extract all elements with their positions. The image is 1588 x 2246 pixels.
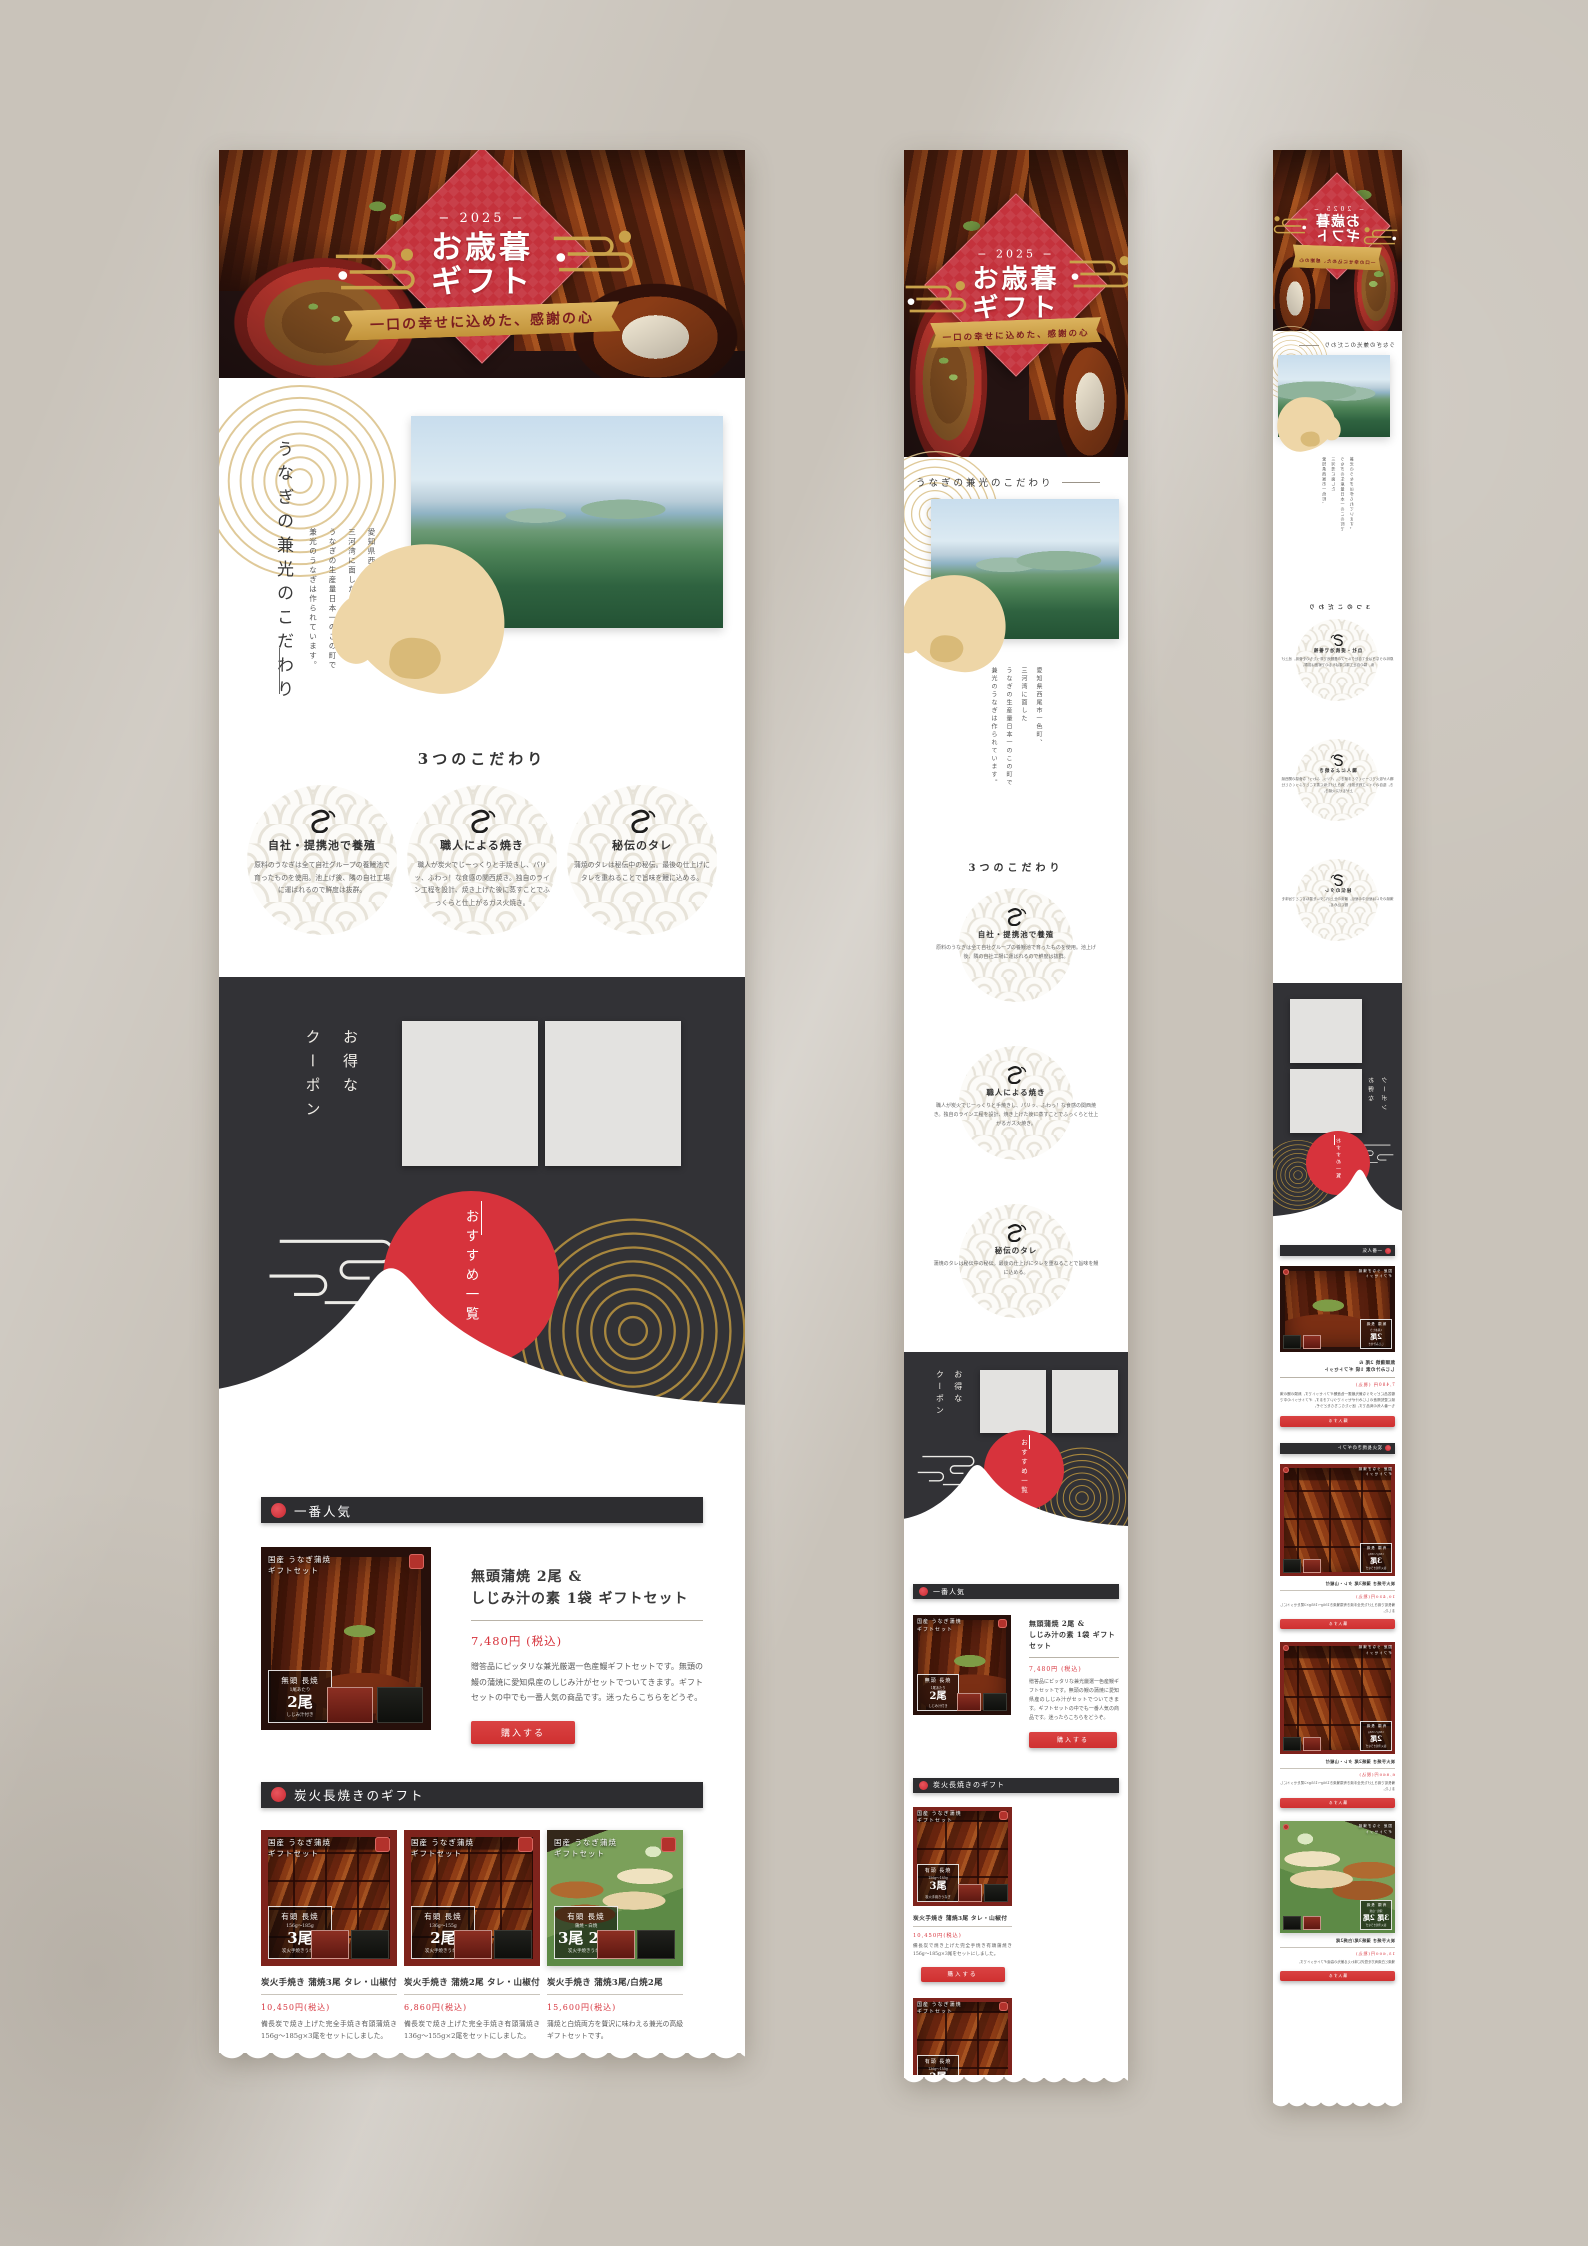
charcoal-gift-banner: 炭火長焼きのギフト xyxy=(913,1778,1119,1793)
buy-button[interactable]: 購入する xyxy=(1029,1732,1117,1748)
feature-desc: 蒲焼のタレは秘伝中の秘伝。最後の仕上げにタレを重ねることで旨味を鰻に込める。 xyxy=(573,859,711,884)
concept-title: うなぎの兼光のこだわり xyxy=(1280,341,1395,349)
banner-label: 炭火長焼きのギフト xyxy=(933,1780,1005,1790)
hero-title-line1: お歳暮 xyxy=(431,231,533,265)
red-seal-stamp-icon xyxy=(1283,1269,1289,1275)
product-photo: 国産 うなぎ蒲焼ギフトセット 無頭 長焼 1尾あたり 2尾 しじみ汁付き xyxy=(261,1547,431,1730)
banner-label: 一番人気 xyxy=(933,1587,965,1597)
concept-paragraph-line: 愛知県西尾市一色町、 xyxy=(1319,457,1328,573)
gold-cloud-icon xyxy=(1273,215,1314,237)
eel-icon xyxy=(1329,753,1346,766)
product-title: 無頭蒲焼 2尾 &しじみ汁の素 1袋 ギフトセット xyxy=(1029,1619,1119,1658)
photo-thumb xyxy=(377,1687,423,1723)
product-photo: 国産 うなぎ蒲焼ギフトセット 有頭 長焼 蒲焼・白焼 3尾 2尾 炭火手焼きうな… xyxy=(1280,1821,1395,1933)
photo-caption-line: ギフトセット xyxy=(268,1848,331,1859)
feature-desc: 職人が炭火でじーっくりと手焼きし、パリッ、ふわっ！な食感の関西焼き。独自のライン… xyxy=(1281,777,1395,795)
photo-caption: 国産 うなぎ蒲焼ギフトセット xyxy=(1358,1645,1392,1656)
features-heading: 3つのこだわり xyxy=(219,748,745,769)
gold-cloud-icon xyxy=(904,279,974,319)
product-card: 国産 うなぎ蒲焼ギフトセット 有頭 長焼 蒲焼・白焼 3尾 2尾 炭火手焼きうな… xyxy=(547,1830,683,2053)
eel-icon xyxy=(1003,1222,1029,1242)
product-title-line: しじみ汁の素 1袋 ギフトセット xyxy=(1029,1630,1119,1652)
badge-count: 2尾 xyxy=(1362,1735,1390,1743)
concept-title: うなぎの兼光のこだわり xyxy=(916,475,1116,489)
hero-ribbon-text: 一口の幸せに込めた、感謝の心 xyxy=(370,310,594,334)
badge-head: 有頭 長焼 xyxy=(919,1867,957,1874)
banner-dot-icon xyxy=(271,1503,286,1518)
feature-item: 秘伝のタレ 蒲焼のタレは秘伝中の秘伝。最後の仕上げにタレを重ねることで旨味を鰻に… xyxy=(916,1200,1116,1346)
badge-sub: 1尾あたり xyxy=(919,1685,957,1690)
feature-title: 自社・提携池で養殖 xyxy=(916,929,1116,940)
concept-title-rule xyxy=(279,648,280,694)
banner-label: 一番人気 xyxy=(294,1501,352,1520)
features-section: 3つのこだわり 自社・提携池で養殖 原料のうなぎは全て自社グループの養鰻池で育っ… xyxy=(904,849,1128,1352)
hero-year: − 2025 − xyxy=(431,211,533,226)
coupon-placeholder-1[interactable] xyxy=(980,1370,1046,1433)
product-desc: 備長炭で焼き上げた完全手焼き有頭蒲焼き136g〜155g×2尾をセットにしました… xyxy=(404,2019,540,2043)
product-title-line: 無頭蒲焼 2尾 & xyxy=(471,1567,703,1589)
banner-dot-icon xyxy=(919,1781,928,1790)
product-photo: 国産 うなぎ蒲焼ギフトセット 有頭 長焼 136g〜155g 2尾 炭火手焼きう… xyxy=(913,1998,1012,2078)
concept-paragraph: 愛知県西尾市一色町、 三河湾に面した うなぎの生産量日本一のこの町で 兼光のうな… xyxy=(1319,457,1356,573)
coupon-placeholder-2[interactable] xyxy=(1290,1069,1362,1133)
photo-thumb xyxy=(351,1930,389,1959)
photo-caption: 国産 うなぎ蒲焼ギフトセット xyxy=(917,2002,962,2017)
concept-paragraph-line: 兼光のうなぎは作られています。 xyxy=(1347,457,1356,573)
red-seal-stamp-icon xyxy=(999,2002,1008,2011)
eel-icon xyxy=(1329,873,1346,886)
coupon-recommend-section: お得な クーポン おすすめ一覧 xyxy=(219,977,745,1433)
coupon-label: お得な クーポン xyxy=(930,1370,967,1418)
red-seal-stamp-icon xyxy=(1283,1824,1289,1830)
buy-button[interactable]: 購入する xyxy=(921,1967,1005,1982)
badge-count: 2尾 xyxy=(271,1694,329,1711)
torn-edge xyxy=(219,2050,745,2064)
photo-thumb xyxy=(327,1687,373,1723)
feature-title: 職人による焼き xyxy=(402,837,562,853)
concept-paragraph: 愛知県西尾市一色町、 三河湾に面した うなぎの生産量日本一のこの町で 兼光のうな… xyxy=(986,667,1046,825)
photo-caption-line: 国産 うなぎ蒲焼 xyxy=(268,1837,331,1848)
product-desc: 備長炭で焼き上げた完全手焼き有頭蒲焼き156g〜185g×3尾をセットにしました… xyxy=(913,1943,1012,1959)
red-seal-stamp-icon xyxy=(998,1619,1007,1628)
product-photo: 国産 うなぎ蒲焼ギフトセット 有頭 長焼 蒲焼・白焼 3尾 2尾 炭火手焼きうな… xyxy=(547,1830,683,1966)
feature-title: 秘伝のタレ xyxy=(916,1245,1116,1256)
badge-head: 有頭 長焼 xyxy=(1362,1903,1390,1908)
feature-desc: 原料のうなぎは全て自社グループの養鰻池で育ったものを使用。池上げ後、隣の自社工場… xyxy=(253,859,391,897)
eel-icon xyxy=(1003,906,1029,926)
concept-paragraph-line: うなぎの生産量日本一のこの町で xyxy=(1001,667,1016,825)
eel-icon xyxy=(465,807,499,833)
gold-cloud-icon xyxy=(1360,226,1403,248)
photo-caption-line: 国産 うなぎ蒲焼 xyxy=(1358,1824,1392,1829)
product-title: 炭火手焼き 蒲焼3尾 タレ・山椒付 xyxy=(913,1913,1012,1927)
eel-icon xyxy=(1003,1064,1029,1084)
coupon-recommend-section: お得な クーポン おすすめ一覧 xyxy=(904,1352,1128,1538)
photo-caption: 国産 うなぎ蒲焼ギフトセット xyxy=(554,1837,617,1860)
product-card: 国産 うなぎ蒲焼ギフトセット 有頭 長焼 156g〜185g 3尾 炭火手焼きう… xyxy=(261,1830,397,2053)
feature-item: 秘伝のタレ 蒲焼のタレは秘伝中の秘伝。最後の仕上げにタレを重ねることで旨味を鰻に… xyxy=(1277,857,1399,969)
product-title: 炭火手焼き 蒲焼2尾 タレ・山椒付 xyxy=(1280,1759,1395,1769)
buy-button[interactable]: 購入する xyxy=(471,1721,575,1744)
badge-count: 3尾 2尾 xyxy=(1362,1914,1390,1922)
coupon-placeholder-2[interactable] xyxy=(545,1021,681,1166)
badge-note: 炭火手焼きうなぎ xyxy=(1362,1923,1390,1927)
feature-item: 秘伝のタレ 蒲焼のタレは秘伝中の秘伝。最後の仕上げにタレを重ねることで旨味を鰻に… xyxy=(562,775,722,971)
buy-button[interactable]: 購入する xyxy=(1280,1619,1395,1629)
product-card: 国産 うなぎ蒲焼ギフトセット 有頭 長焼 蒲焼・白焼 3尾 2尾 炭火手焼きうな… xyxy=(1280,1821,1395,1981)
badge-sub: 136g〜155g xyxy=(414,1923,472,1929)
photo-thumb xyxy=(311,1930,349,1959)
best-seller-section: 一番人気 国産 うなぎ蒲焼ギフトセット 無頭 長焼 1尾あたり 2尾 しじみ汁付… xyxy=(904,1584,1128,1748)
banner-dot-icon xyxy=(1385,1445,1391,1451)
red-seal-stamp-icon xyxy=(661,1837,676,1852)
product-card: 国産 うなぎ蒲焼ギフトセット 有頭 長焼 156g〜185g 3尾 炭火手焼きう… xyxy=(1280,1464,1395,1630)
buy-button[interactable]: 購入する xyxy=(1280,1798,1395,1808)
red-seal-stamp-icon xyxy=(1283,1467,1289,1473)
photo-thumb xyxy=(1303,1559,1321,1573)
badge-note: 炭火手焼きうなぎ xyxy=(1362,1566,1390,1570)
charcoal-gift-section: 炭火長焼きのギフト 国産 うなぎ蒲焼ギフトセット 有頭 長焼 156g〜185g… xyxy=(219,1782,745,2053)
hero-title-line2: ギフト xyxy=(431,265,533,299)
product-desc: 蒲焼と白焼両方を贅沢に味わえる兼光の高級ギフトセットです。 xyxy=(547,2019,683,2043)
product-desc: 備長炭で焼き上げた完全手焼き有頭蒲焼き136g〜155g×2尾をセットにしました… xyxy=(1280,1781,1395,1793)
badge-sub: 156g〜185g xyxy=(919,1875,957,1880)
product-title-line: しじみ汁の素 1袋 ギフトセット xyxy=(471,1589,703,1611)
eel-icon xyxy=(625,807,659,833)
feature-item: 職人による焼き 職人が炭火でじーっくりと手焼きし、パリッ、ふわっ！な食感の関西焼… xyxy=(1277,737,1399,849)
feature-title: 自社・提携池で養殖 xyxy=(1277,648,1399,654)
photo-caption-line: 国産 うなぎ蒲焼 xyxy=(917,1619,962,1627)
product-price: 7,480円 (税込) xyxy=(471,1633,703,1649)
hero-photo-unadon xyxy=(1054,328,1126,457)
features-section: 3つのこだわり 自社・提携池で養殖 原料のうなぎは全て自社グループの養鰻池で育っ… xyxy=(1273,597,1402,983)
photo-caption-line: 国産 うなぎ蒲焼 xyxy=(411,1837,474,1848)
feature-title: 職人による焼き xyxy=(916,1087,1116,1098)
mt-fuji-shape xyxy=(219,1228,745,1433)
product-photo: 国産 うなぎ蒲焼ギフトセット 有頭 長焼 136g〜155g 2尾 炭火手焼きう… xyxy=(404,1830,540,1966)
hero-title-block: − 2025 − お歳暮 ギフト xyxy=(972,247,1059,322)
product-photo: 国産 うなぎ蒲焼ギフトセット 有頭 長焼 156g〜185g 3尾 炭火手焼きう… xyxy=(913,1807,1012,1906)
product-title: 炭火手焼き 蒲焼3尾/白焼2尾 xyxy=(547,1976,683,1995)
photo-caption-line: ギフトセット xyxy=(1358,1274,1392,1279)
product-title-line: 無頭蒲焼 2尾 & xyxy=(1029,1619,1119,1630)
feature-title: 秘伝のタレ xyxy=(562,837,722,853)
best-seller-banner: 一番人気 xyxy=(913,1584,1119,1599)
best-seller-banner: 一番人気 xyxy=(1280,1245,1395,1256)
badge-sub: 1尾あたり xyxy=(1362,1328,1390,1332)
feature-item: 自社・提携池で養殖 原料のうなぎは全て自社グループの養鰻池で育ったものを使用。池… xyxy=(242,775,402,971)
product-photo: 国産 うなぎ蒲焼ギフトセット 有頭 長焼 136g〜155g 2尾 炭火手焼きう… xyxy=(1280,1642,1395,1754)
badge-count: 3尾 xyxy=(919,1881,957,1893)
badge-head: 有頭 長焼 xyxy=(414,1911,472,1922)
badge-note: しじみ汁付き xyxy=(1362,1342,1390,1346)
badge-head: 有頭 長焼 xyxy=(557,1911,615,1922)
mt-fuji-shape xyxy=(904,1447,1128,1538)
red-seal-stamp-icon xyxy=(375,1837,390,1852)
buy-button[interactable]: 購入する xyxy=(1280,1971,1395,1981)
concept-section: うなぎの兼光のこだわり 愛知県西尾市一色町、 三河湾に面した うなぎの生産量日本… xyxy=(1273,331,1402,597)
product-price: 10,450円(税込) xyxy=(1280,1594,1395,1600)
product-title: 炭火手焼き 蒲焼3尾/白焼2尾 xyxy=(1280,1938,1395,1948)
badge-sub: 136g〜155g xyxy=(919,2066,957,2071)
badge-note: しじみ汁付き xyxy=(919,1703,957,1708)
photo-thumb xyxy=(1283,1737,1301,1751)
feature-desc: 蒲焼のタレは秘伝中の秘伝。最後の仕上げにタレを重ねることで旨味を鰻に込める。 xyxy=(1281,897,1395,909)
concept-paragraph-line: 愛知県西尾市一色町、 xyxy=(1031,667,1046,825)
recommend-label-rule xyxy=(1334,1135,1335,1145)
hero-ribbon-text: 一口の幸せに込めた、感謝の心 xyxy=(942,328,1089,343)
photo-caption-line: ギフトセット xyxy=(554,1848,617,1859)
hero-ribbon: 一口の幸せに込めた、感謝の心 xyxy=(1293,244,1383,270)
feature-item: 職人による焼き 職人が炭火でじーっくりと手焼きし、パリッ、ふわっ！な食感の関西焼… xyxy=(916,1042,1116,1188)
gold-cloud-icon xyxy=(540,228,644,280)
badge-head: 有頭 長焼 xyxy=(919,2058,957,2065)
product-card: 国産 うなぎ蒲焼ギフトセット 有頭 長焼 136g〜155g 2尾 炭火手焼きう… xyxy=(1280,1642,1395,1808)
photo-thumb xyxy=(494,1930,532,1959)
badge-count: 2尾 xyxy=(1362,1333,1390,1341)
product-title: 無頭蒲焼 2尾 &しじみ汁の素 1袋 ギフトセット xyxy=(1280,1360,1395,1378)
photo-thumb xyxy=(1283,1335,1301,1349)
product-price: 7,480円 (税込) xyxy=(1280,1382,1395,1388)
mockup-page-mobile-mirrored: − 2025 − お歳暮 ギフト 一口の幸せに込めた、感謝の心 うなぎの兼光のこ… xyxy=(1273,150,1402,2102)
product-badge: 無頭 長焼 1尾あたり 2尾 しじみ汁付き xyxy=(917,1674,959,1712)
badge-sub: 156g〜185g xyxy=(271,1923,329,1929)
product-price: 10,450円(税込) xyxy=(913,1932,1012,1939)
photo-caption-line: ギフトセット xyxy=(1358,1830,1392,1835)
hero-header: − 2025 − お歳暮 ギフト 一口の幸せに込めた、感謝の心 xyxy=(904,150,1128,457)
photo-caption: 国産 うなぎ蒲焼ギフトセット xyxy=(917,1811,962,1826)
photo-caption-line: 国産 うなぎ蒲焼 xyxy=(917,1811,962,1819)
gold-cloud-icon xyxy=(1060,254,1128,294)
product-title: 炭火手焼き 蒲焼3尾 タレ・山椒付 xyxy=(261,1976,397,1995)
product-photo: 国産 うなぎ蒲焼ギフトセット 有頭 長焼 156g〜185g 3尾 炭火手焼きう… xyxy=(261,1830,397,1966)
photo-caption-line: ギフトセット xyxy=(1358,1651,1392,1656)
photo-thumb xyxy=(454,1930,492,1959)
hero-ribbon: 一口の幸せに込めた、感謝の心 xyxy=(930,317,1102,348)
photo-caption: 国産 うなぎ蒲焼ギフトセット xyxy=(268,1554,331,1577)
coupon-placeholder-1[interactable] xyxy=(1290,999,1362,1063)
hero-title-line2: ギフト xyxy=(972,294,1059,323)
badge-note: 炭火手焼きうなぎ xyxy=(1362,1744,1390,1748)
product-desc: 備長炭で焼き上げた完全手焼き有頭蒲焼き156g〜185g×3尾をセットにしました… xyxy=(1280,1603,1395,1615)
product-badge: 有頭 長焼 156g〜185g 3尾 炭火手焼きうなぎ xyxy=(1360,1543,1392,1573)
concept-paragraph-line: 兼光のうなぎは作られています。 xyxy=(303,528,323,706)
badge-sub: 蒲焼・白焼 xyxy=(557,1923,615,1929)
product-title: 無頭蒲焼 2尾 &しじみ汁の素 1袋 ギフトセット xyxy=(471,1567,703,1621)
best-seller-section: 一番人気 国産 うなぎ蒲焼ギフトセット 無頭 長焼 1尾あたり 2尾 しじみ汁付… xyxy=(1273,1245,1402,1427)
product-badge: 有頭 長焼 156g〜185g 3尾 炭火手焼きうなぎ xyxy=(917,1864,959,1902)
product-card: 国産 うなぎ蒲焼ギフトセット 有頭 長焼 136g〜155g 2尾 炭火手焼きう… xyxy=(913,1998,1012,2078)
photo-thumb xyxy=(1303,1335,1321,1349)
banner-dot-icon xyxy=(919,1587,928,1596)
badge-note: 炭火手焼きうなぎ xyxy=(919,1894,957,1899)
badge-head: 有頭 長焼 xyxy=(1362,1546,1390,1551)
product-desc: 贈答品にピッタリな兼光厳選一色産鰻ギフトセットです。無頭の鰻の蒲焼に愛知県産のし… xyxy=(471,1659,703,1705)
product-badge: 無頭 長焼 1尾あたり 2尾 しじみ汁付き xyxy=(1360,1319,1392,1349)
hero-header: − 2025 − お歳暮 ギフト 一口の幸せに込めた、感謝の心 xyxy=(1273,150,1402,331)
badge-sub: 1尾あたり xyxy=(271,1687,329,1693)
badge-head: 無頭 長焼 xyxy=(1362,1322,1390,1327)
photo-thumb xyxy=(984,1884,1008,1902)
feature-item: 自社・提携池で養殖 原料のうなぎは全て自社グループの養鰻池で育ったものを使用。池… xyxy=(1277,617,1399,729)
charcoal-gift-banner: 炭火長焼きのギフト xyxy=(1280,1443,1395,1454)
buy-button[interactable]: 購入する xyxy=(1280,1416,1395,1427)
hero-ribbon-text: 一口の幸せに込めた、感謝の心 xyxy=(1299,259,1376,267)
product-desc: 贈答品にピッタリな兼光厳選一色産鰻ギフトセットです。無頭の鰻の蒲焼に愛知県産のし… xyxy=(1029,1678,1119,1723)
red-seal-stamp-icon xyxy=(518,1837,533,1852)
feature-title: 秘伝のタレ xyxy=(1277,888,1399,894)
photo-thumb xyxy=(957,1693,981,1711)
mt-fuji-shape xyxy=(1273,1156,1402,1225)
product-desc: 贈答品にピッタリな兼光厳選一色産鰻ギフトセットです。無頭の鰻の蒲焼に愛知県産のし… xyxy=(1280,1391,1395,1409)
photo-caption: 国産 うなぎ蒲焼ギフトセット xyxy=(1358,1269,1392,1280)
gold-cloud-icon xyxy=(322,246,426,298)
concept-section: うなぎの兼光のこだわり 愛知県西尾市一色町、 三河湾に面した うなぎの生産量日本… xyxy=(219,378,745,738)
red-seal-stamp-icon xyxy=(999,1811,1008,1820)
features-section: 3つのこだわり 自社・提携池で養殖 原料のうなぎは全て自社グループの養鰻池で育っ… xyxy=(219,738,745,977)
photo-thumb xyxy=(597,1930,635,1959)
product-price: 6,860円(税込) xyxy=(404,2002,540,2013)
feature-desc: 蒲焼のタレは秘伝中の秘伝。最後の仕上げにタレを重ねることで旨味を鰻に込める。 xyxy=(932,1260,1100,1278)
banner-label: 炭火長焼きのギフト xyxy=(294,1785,425,1804)
concept-section: うなぎの兼光のこだわり 愛知県西尾市一色町、 三河湾に面した うなぎの生産量日本… xyxy=(904,457,1128,849)
hero-title-block: − 2025 − お歳暮 ギフト xyxy=(1311,206,1364,246)
product-price: 15,600円(税込) xyxy=(547,2002,683,2013)
feature-title: 自社・提携池で養殖 xyxy=(242,837,402,853)
badge-sub: 136g〜155g xyxy=(1362,1730,1390,1734)
product-card: 国産 うなぎ蒲焼ギフトセット 有頭 長焼 156g〜185g 3尾 炭火手焼きう… xyxy=(913,1807,1012,1982)
charcoal-gift-section: 炭火長焼きのギフト 国産 うなぎ蒲焼ギフトセット 有頭 長焼 156g〜185g… xyxy=(904,1778,1128,2078)
badge-head: 無頭 長焼 xyxy=(919,1677,957,1684)
product-price: 10,450円(税込) xyxy=(261,2002,397,2013)
coupon-placeholder-2[interactable] xyxy=(1052,1370,1118,1433)
features-heading: 3つのこだわり xyxy=(1273,603,1402,611)
photo-caption-line: ギフトセット xyxy=(917,1818,962,1826)
photo-thumb xyxy=(1283,1916,1301,1930)
hero-year: − 2025 − xyxy=(1311,206,1364,213)
photo-thumb xyxy=(1303,1737,1321,1751)
coupon-label: お得な クーポン xyxy=(1366,1077,1392,1113)
torn-edge xyxy=(1273,2100,1402,2110)
product-badge: 有頭 長焼 蒲焼・白焼 3尾 2尾 炭火手焼きうなぎ xyxy=(1360,1900,1392,1930)
photo-caption-line: ギフトセット xyxy=(1358,1472,1392,1477)
eel-icon xyxy=(305,807,339,833)
best-seller-section: 一番人気 国産 うなぎ蒲焼ギフトセット 無頭 長焼 1尾あたり 2尾 しじみ汁付… xyxy=(219,1497,745,1744)
product-title-line: 無頭蒲焼 2尾 & xyxy=(1280,1360,1395,1367)
features-heading: 3つのこだわり xyxy=(904,859,1128,874)
product-price: 15,600円(税込) xyxy=(1280,1951,1395,1957)
coupon-recommend-section: お得な クーポン おすすめ一覧 xyxy=(1273,983,1402,1225)
best-seller-banner: 一番人気 xyxy=(261,1497,703,1523)
mockup-page-desktop: − 2025 − お歳暮 ギフト 一口の幸せに込めた、感謝の心 うなぎの兼光のこ… xyxy=(219,150,745,2053)
feature-desc: 職人が炭火でじーっくりと手焼きし、パリッ、ふわっ！な食感の関西焼き。独自のライン… xyxy=(932,1102,1100,1129)
charcoal-gift-section: 炭火長焼きのギフト 国産 うなぎ蒲焼ギフトセット 有頭 長焼 156g〜185g… xyxy=(1273,1443,1402,1992)
photo-thumb xyxy=(637,1930,675,1959)
product-title-line: しじみ汁の素 1袋 ギフトセット xyxy=(1280,1367,1395,1374)
product-card: 国産 うなぎ蒲焼ギフトセット 有頭 長焼 136g〜155g 2尾 炭火手焼きう… xyxy=(404,1830,540,2053)
hero-title-line1: お歳暮 xyxy=(972,265,1059,294)
badge-note: しじみ汁付き xyxy=(271,1712,329,1718)
coupon-label: お得な クーポン xyxy=(293,1029,368,1125)
product-badge: 有頭 長焼 136g〜155g 2尾 炭火手焼きうなぎ xyxy=(1360,1721,1392,1751)
presentation-canvas: − 2025 − お歳暮 ギフト 一口の幸せに込めた、感謝の心 うなぎの兼光のこ… xyxy=(0,0,1588,2246)
badge-sub: 蒲焼・白焼 xyxy=(1362,1909,1390,1913)
hero-header: − 2025 − お歳暮 ギフト 一口の幸せに込めた、感謝の心 xyxy=(219,150,745,378)
photo-caption-line: 国産 うなぎ蒲焼 xyxy=(554,1837,617,1848)
product-photo: 国産 うなぎ蒲焼ギフトセット 無頭 長焼 1尾あたり 2尾 しじみ汁付き xyxy=(913,1615,1011,1715)
hero-title-block: − 2025 − お歳暮 ギフト xyxy=(431,211,533,299)
banner-label: 一番人気 xyxy=(1362,1248,1382,1254)
badge-count: 2尾 xyxy=(919,1691,957,1703)
photo-caption-line: 国産 うなぎ蒲焼 xyxy=(917,2002,962,2010)
coupon-placeholder-1[interactable] xyxy=(402,1021,538,1166)
torn-edge xyxy=(904,2075,1128,2087)
photo-caption: 国産 うなぎ蒲焼ギフトセット xyxy=(1358,1824,1392,1835)
product-badge: 無頭 長焼 1尾あたり 2尾 しじみ汁付き xyxy=(268,1670,332,1723)
photo-caption-line: 国産 うなぎ蒲焼 xyxy=(268,1554,331,1565)
red-seal-stamp-icon xyxy=(409,1554,424,1569)
mockup-page-tablet: − 2025 − お歳暮 ギフト 一口の幸せに込めた、感謝の心 うなぎの兼光のこ… xyxy=(904,150,1128,2078)
hero-ribbon: 一口の幸せに込めた、感謝の心 xyxy=(344,301,621,341)
concept-title: うなぎの兼光のこだわり xyxy=(271,440,296,704)
feature-title: 職人による焼き xyxy=(1277,768,1399,774)
product-price: 7,480円 (税込) xyxy=(1029,1664,1119,1673)
photo-caption-line: ギフトセット xyxy=(917,2009,962,2017)
photo-caption: 国産 うなぎ蒲焼ギフトセット xyxy=(1358,1467,1392,1478)
badge-sub: 156g〜185g xyxy=(1362,1552,1390,1556)
photo-caption: 国産 うなぎ蒲焼ギフトセット xyxy=(411,1837,474,1860)
banner-dot-icon xyxy=(1385,1248,1391,1254)
badge-head: 有頭 長焼 xyxy=(1362,1724,1390,1729)
product-photo: 国産 うなぎ蒲焼ギフトセット 有頭 長焼 156g〜185g 3尾 炭火手焼きう… xyxy=(1280,1464,1395,1576)
banner-dot-icon xyxy=(271,1787,286,1802)
photo-thumb xyxy=(1283,1559,1301,1573)
photo-caption-line: ギフトセット xyxy=(268,1565,331,1576)
banner-label: 炭火長焼きのギフト xyxy=(1337,1445,1382,1451)
product-price: 6,860円(税込) xyxy=(1280,1772,1395,1778)
product-title: 炭火手焼き 蒲焼3尾 タレ・山椒付 xyxy=(1280,1581,1395,1591)
photo-caption-line: ギフトセット xyxy=(411,1848,474,1859)
feature-desc: 職人が炭火でじーっくりと手焼きし、パリッ、ふわっ！な食感の関西焼き。独自のライン… xyxy=(413,859,551,909)
photo-caption-line: ギフトセット xyxy=(917,1627,962,1635)
concept-paragraph-line: 三河湾に面した xyxy=(1016,667,1031,825)
feature-item: 自社・提携池で養殖 原料のうなぎは全て自社グループの養鰻池で育ったものを使用。池… xyxy=(916,884,1116,1030)
concept-paragraph-line: 三河湾に面した xyxy=(1328,457,1337,573)
feature-desc: 原料のうなぎは全て自社グループの養鰻池で育ったものを使用。池上げ後、隣の自社工場… xyxy=(932,944,1100,962)
hero-title-line2: ギフト xyxy=(1311,231,1364,246)
photo-caption: 国産 うなぎ蒲焼ギフトセット xyxy=(917,1619,962,1634)
concept-paragraph-line: 兼光のうなぎは作られています。 xyxy=(986,667,1001,825)
product-desc: 蒲焼と白焼両方を贅沢に味わえる兼光の高級ギフトセットです。 xyxy=(1280,1960,1395,1966)
product-photo: 国産 うなぎ蒲焼ギフトセット 無頭 長焼 1尾あたり 2尾 しじみ汁付き xyxy=(1280,1266,1395,1352)
eel-icon xyxy=(1329,633,1346,646)
hero-year: − 2025 − xyxy=(972,247,1059,260)
product-title: 炭火手焼き 蒲焼2尾 タレ・山椒付 xyxy=(404,1976,540,1995)
badge-head: 無頭 長焼 xyxy=(271,1675,329,1686)
product-desc: 備長炭で焼き上げた完全手焼き有頭蒲焼き156g〜185g×3尾をセットにしました… xyxy=(261,2019,397,2043)
feature-item: 職人による焼き 職人が炭火でじーっくりと手焼きし、パリッ、ふわっ！な食感の関西焼… xyxy=(402,775,562,971)
charcoal-gift-banner: 炭火長焼きのギフト xyxy=(261,1782,703,1808)
badge-head: 有頭 長焼 xyxy=(271,1911,329,1922)
photo-caption: 国産 うなぎ蒲焼ギフトセット xyxy=(268,1837,331,1860)
photo-thumb xyxy=(958,1884,982,1902)
concept-paragraph-line: うなぎの生産量日本一のこの町で xyxy=(1338,457,1347,573)
feature-desc: 原料のうなぎは全て自社グループの養鰻池で育ったものを使用。池上げ後、隣の自社工場… xyxy=(1281,657,1395,669)
photo-thumb xyxy=(983,1693,1007,1711)
photo-thumb xyxy=(1303,1916,1321,1930)
badge-count: 3尾 xyxy=(1362,1557,1390,1565)
red-seal-stamp-icon xyxy=(1283,1645,1289,1651)
